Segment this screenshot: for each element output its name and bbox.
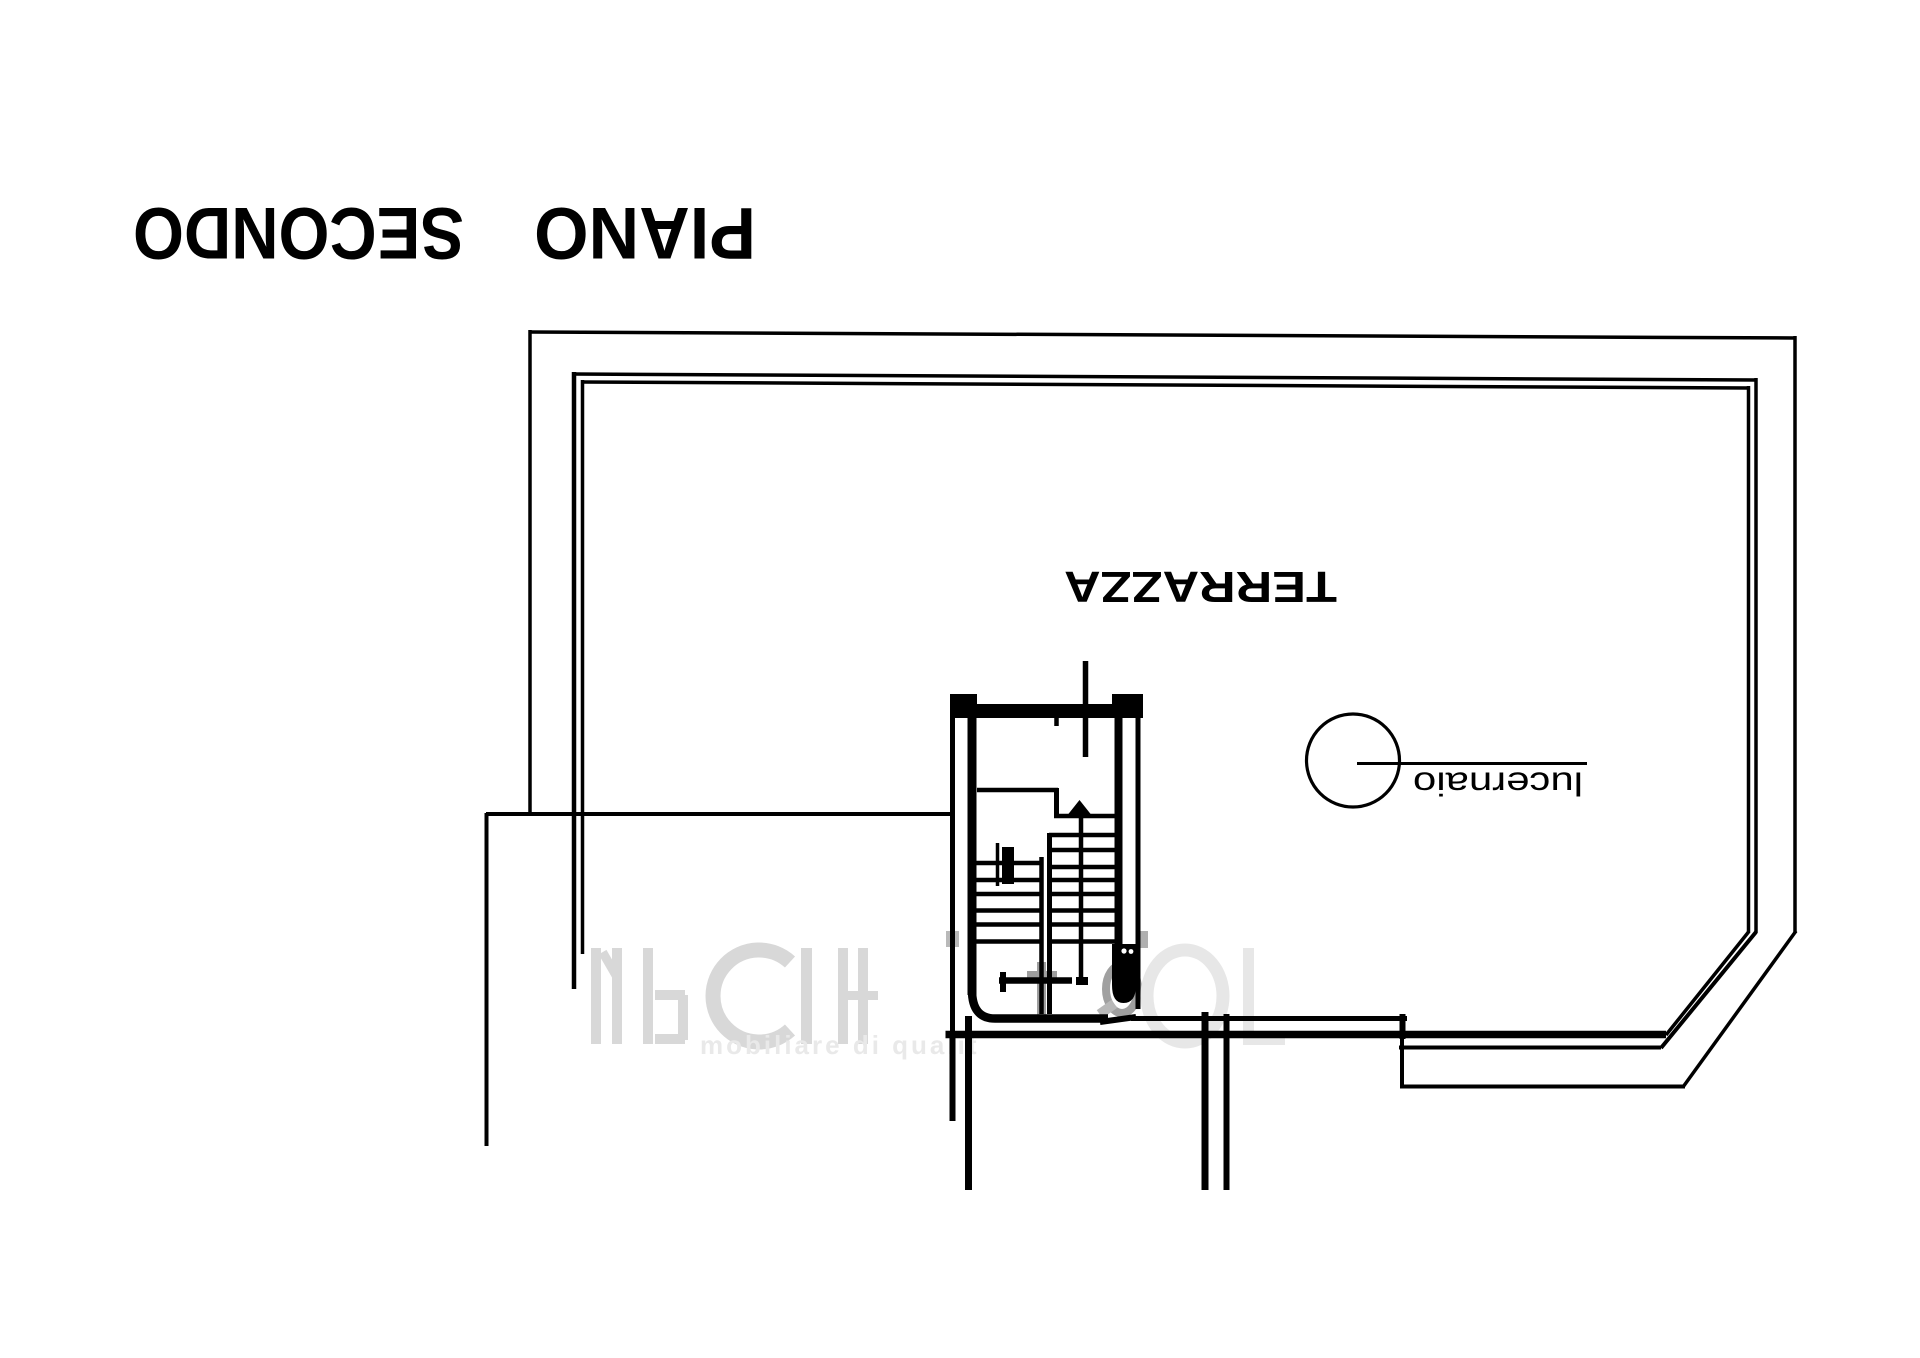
svg-text:mobiliare di qualit: mobiliare di qualit: [700, 1030, 979, 1060]
svg-text:SECONDO: SECONDO: [133, 192, 464, 273]
svg-text:lucernaio: lucernaio: [1413, 766, 1583, 803]
svg-text:PIANO: PIANO: [534, 192, 756, 273]
svg-text:TERRAZZA: TERRAZZA: [1064, 562, 1337, 611]
